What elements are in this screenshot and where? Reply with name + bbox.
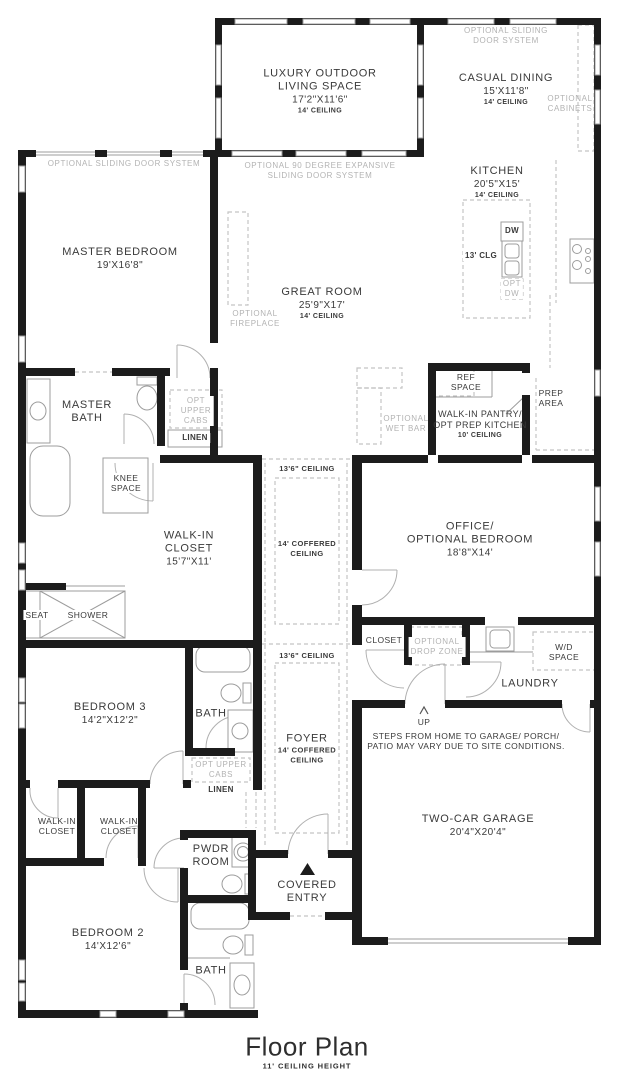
label-foyer-ceiling: 13'6" CEILING <box>277 651 337 661</box>
window <box>19 678 25 702</box>
toilet-bowl <box>223 936 243 954</box>
label-linen-1: LINEN <box>180 433 210 443</box>
wall <box>77 788 85 858</box>
window <box>232 151 282 156</box>
optional-wet-bar-outline <box>357 368 402 388</box>
label-wd-space: W/D SPACE <box>547 642 581 662</box>
wall <box>325 912 362 920</box>
wall <box>185 748 235 756</box>
window <box>418 98 423 138</box>
label-13-clg: 13' CLG <box>463 251 499 261</box>
label-dishwasher: DW <box>503 226 521 236</box>
window <box>19 166 25 192</box>
optional-fireplace-outline <box>228 212 248 305</box>
wall <box>352 700 362 945</box>
window <box>19 336 25 362</box>
label-casual-dining: CASUAL DINING 15'X11'8" 14' CEILING <box>459 72 553 108</box>
laundry-sink-basin <box>490 630 510 648</box>
toilet-bowl <box>221 684 241 702</box>
window <box>168 1011 184 1017</box>
wall <box>594 625 601 945</box>
wall <box>522 363 530 373</box>
label-prep-area: PREP AREA <box>539 388 564 408</box>
label-foyer: FOYER 14' COFFERED CEILING <box>276 733 338 766</box>
window <box>418 45 423 85</box>
window <box>595 90 600 124</box>
bathtub <box>196 646 250 672</box>
label-linen-2: LINEN <box>206 785 236 795</box>
wall <box>18 1010 258 1018</box>
toilet-bowl <box>222 875 242 893</box>
wall <box>180 895 256 903</box>
wall <box>352 700 405 708</box>
label-up: UP <box>418 717 431 727</box>
sink-basin <box>232 723 248 739</box>
window <box>595 370 600 396</box>
island-sink-basin <box>505 261 519 275</box>
door-arc <box>466 662 501 697</box>
wall <box>18 780 30 788</box>
bathtub <box>30 446 70 516</box>
door-arc <box>177 345 210 378</box>
wall <box>210 150 218 343</box>
label-opt-dishwasher: OPT DW <box>501 279 523 299</box>
wall <box>180 1003 188 1010</box>
wall <box>352 617 485 625</box>
wall <box>253 455 262 648</box>
label-hall-coffered: 14' COFFERED CEILING <box>276 539 338 559</box>
label-outdoor-living: LUXURY OUTDOOR LIVING SPACE 17'2"X11'6" … <box>263 68 376 117</box>
wall <box>180 830 256 838</box>
toilet-bowl <box>137 386 157 410</box>
toilet-tank <box>243 683 251 703</box>
bathtub <box>191 903 249 929</box>
floor-plan-page: LUXURY OUTDOOR LIVING SPACE 17'2"X11'6" … <box>0 0 629 1080</box>
label-bath-3: BATH <box>195 708 226 721</box>
door-arc <box>144 868 178 902</box>
label-optional-fireplace: OPTIONAL FIREPLACE <box>230 309 280 329</box>
label-master-bedroom: MASTER BEDROOM 19'X16'8" <box>62 246 178 272</box>
window <box>216 98 221 138</box>
label-walk-in-closet-a: WALK-IN CLOSET <box>38 816 76 836</box>
window <box>19 570 25 590</box>
chevron-up-icon <box>420 707 428 714</box>
triangle-up-icon <box>300 863 315 875</box>
label-seat: SEAT <box>23 610 50 620</box>
wall <box>253 648 262 790</box>
label-walk-in-closet-b: WALK-IN CLOSET <box>100 816 138 836</box>
wall <box>352 463 362 570</box>
wall <box>18 858 104 866</box>
door-arc <box>30 788 58 818</box>
wall <box>248 830 256 920</box>
label-laundry: LAUNDRY <box>501 678 558 691</box>
wall <box>328 850 360 858</box>
label-optional-sliding-door-top: OPTIONAL SLIDING DOOR SYSTEM <box>464 26 548 46</box>
wall <box>138 788 146 858</box>
label-pwdr-room: PWDR ROOM <box>192 843 229 869</box>
label-opt-upper-cabs-2: OPT UPPER CABS <box>193 760 249 780</box>
wall <box>568 937 601 945</box>
label-optional-sliding-master: OPTIONAL SLIDING DOOR SYSTEM <box>48 159 201 169</box>
label-great-room: GREAT ROOM 25'9"X17' 14' CEILING <box>281 286 362 322</box>
door-arc <box>362 570 397 605</box>
window <box>370 19 410 24</box>
label-master-bath: MASTER BATH <box>62 399 112 425</box>
label-walk-in-pantry: WALK-IN PANTRY/ OPT PREP KITCHEN 10' CEI… <box>433 409 527 441</box>
wall <box>58 780 150 788</box>
door-arc <box>124 414 154 444</box>
optional-wet-bar-outline <box>357 388 381 444</box>
window <box>235 19 287 24</box>
wall <box>180 903 188 970</box>
wall <box>18 150 36 157</box>
door-arc <box>405 664 445 704</box>
window <box>448 19 494 24</box>
label-bath-2: BATH <box>195 965 226 978</box>
label-optional-wet-bar: OPTIONAL WET BAR <box>383 414 428 434</box>
label-bedroom-3: BEDROOM 3 14'2"X12'2" <box>74 701 146 727</box>
label-opt-upper-cabs-1: OPT UPPER CABS <box>179 396 214 426</box>
wall <box>590 700 601 708</box>
wall <box>185 648 193 748</box>
window <box>303 19 355 24</box>
door-arc <box>366 650 404 688</box>
wall <box>18 368 75 376</box>
window <box>595 542 600 576</box>
window <box>595 45 600 75</box>
wall <box>255 748 262 756</box>
label-optional-90-sliding: OPTIONAL 90 DEGREE EXPANSIVE SLIDING DOO… <box>244 161 395 181</box>
window <box>510 19 556 24</box>
window <box>362 151 406 156</box>
wall <box>532 455 601 463</box>
label-garage: TWO-CAR GARAGE 20'4"X20'4" <box>422 813 534 839</box>
wall <box>352 937 388 945</box>
door-arc <box>154 838 184 868</box>
label-ref-space: REF SPACE <box>449 372 483 392</box>
window <box>216 45 221 85</box>
wall <box>438 455 522 463</box>
window <box>296 151 346 156</box>
window <box>19 983 25 1001</box>
door-arc <box>288 814 328 854</box>
wall <box>445 700 562 708</box>
label-knee-space: KNEE SPACE <box>109 473 143 493</box>
label-steps-note: STEPS FROM HOME TO GARAGE/ PORCH/ PATIO … <box>367 731 565 751</box>
sink-basin <box>234 975 250 995</box>
wall <box>255 850 288 858</box>
optional-cabinets-outline <box>578 25 594 151</box>
window <box>19 960 25 980</box>
wall <box>160 150 172 157</box>
label-hall-ceiling: 13'6" CEILING <box>277 464 337 474</box>
sink-basin <box>30 402 46 420</box>
wall <box>180 830 188 840</box>
window <box>19 704 25 728</box>
window <box>595 487 600 521</box>
wall <box>183 780 191 788</box>
wall <box>138 858 146 866</box>
wall <box>18 640 262 648</box>
label-optional-drop-zone: OPTIONAL DROP ZONE <box>409 637 466 657</box>
wall <box>160 455 262 463</box>
toilet-tank <box>245 935 253 955</box>
wall <box>518 617 601 625</box>
window <box>100 1011 116 1017</box>
wall <box>352 455 428 463</box>
toilet-tank <box>137 377 157 385</box>
label-walk-in-closet-master: WALK-IN CLOSET 15'7"X11' <box>164 530 214 569</box>
wall <box>248 912 290 920</box>
wall <box>428 363 530 371</box>
door-arc <box>184 974 215 1005</box>
window <box>19 543 25 563</box>
island-sink-basin <box>505 244 519 258</box>
label-bedroom-2: BEDROOM 2 14'X12'6" <box>72 927 144 953</box>
door-arc <box>562 704 590 732</box>
label-closet: CLOSET <box>364 635 404 645</box>
label-office: OFFICE/ OPTIONAL BEDROOM 18'8"X14' <box>407 521 533 560</box>
label-covered-entry: COVERED ENTRY <box>277 879 336 905</box>
wall <box>95 150 107 157</box>
label-optional-cabinets: OPTIONAL CABINETS <box>547 94 592 114</box>
door-arc <box>150 751 183 784</box>
wall <box>157 368 165 446</box>
page-title: Floor Plan 11' CEILING HEIGHT <box>245 1033 369 1072</box>
label-shower: SHOWER <box>66 610 111 620</box>
label-kitchen: KITCHEN 20'5"X15' 14' CEILING <box>470 165 523 201</box>
